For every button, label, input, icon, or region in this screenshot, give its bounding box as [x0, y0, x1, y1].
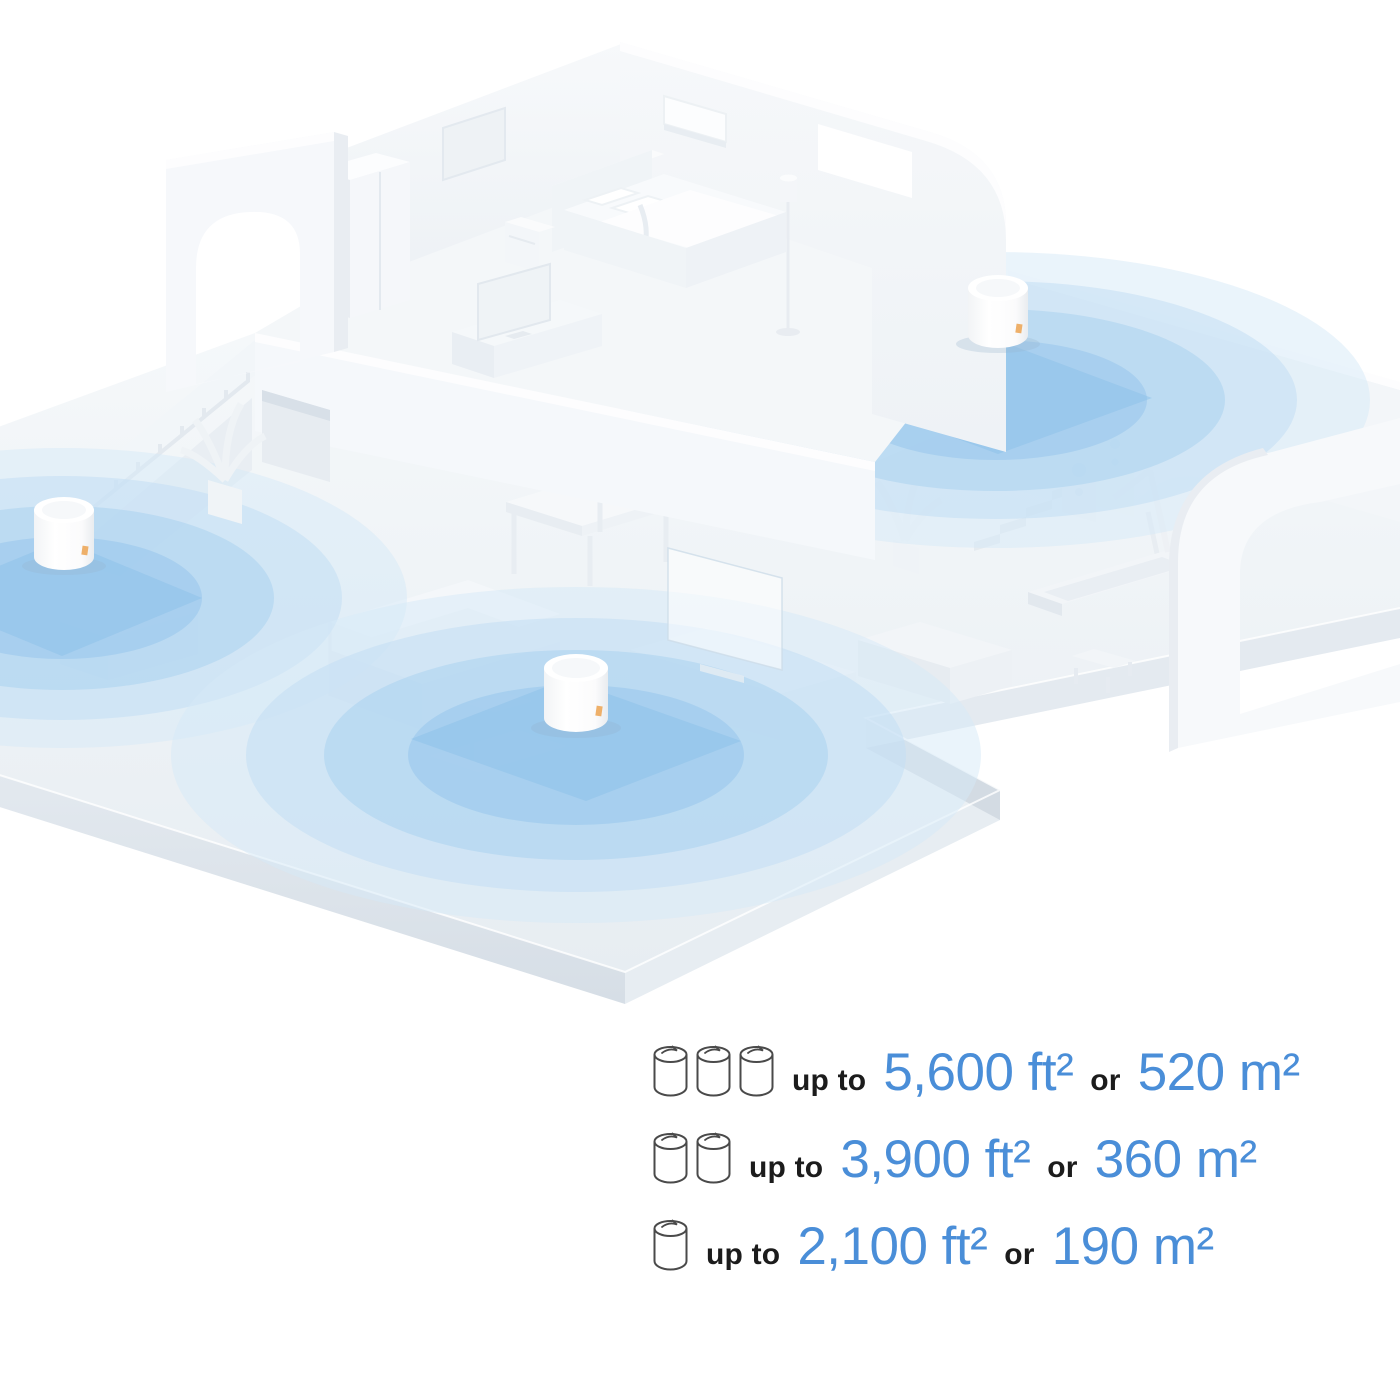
- up-to-label: up to: [706, 1238, 780, 1272]
- mesh-router-cylinder-icon: [652, 1218, 689, 1275]
- coverage-row-1-unit: up to 2,100 ft² or 190 m²: [652, 1216, 1300, 1276]
- area-metric-value: 360 m²: [1095, 1129, 1257, 1190]
- area-imperial-value: 2,100 ft²: [797, 1216, 987, 1277]
- brand-mark: [81, 546, 88, 556]
- coverage-row-2-units: up to 3,900 ft² or 360 m²: [652, 1129, 1300, 1189]
- or-label: or: [1047, 1151, 1077, 1185]
- unit-icons: [652, 1044, 775, 1101]
- brand-mark: [1015, 324, 1022, 334]
- coverage-zone-center: [171, 587, 981, 923]
- coverage-legend: up to 5,600 ft² or 520 m²: [652, 1042, 1300, 1276]
- mesh-router-cylinder-icon: [652, 1131, 689, 1188]
- up-to-label: up to: [792, 1064, 866, 1098]
- mesh-router-cylinder-icon: [695, 1044, 732, 1101]
- up-to-label: up to: [749, 1151, 823, 1185]
- coverage-row-3-units: up to 5,600 ft² or 520 m²: [652, 1042, 1300, 1102]
- mesh-router-cylinder-icon: [652, 1044, 689, 1101]
- mesh-router-cylinder-icon: [695, 1131, 732, 1188]
- area-imperial-value: 5,600 ft²: [883, 1042, 1073, 1103]
- unit-icons: [652, 1218, 689, 1275]
- area-imperial-value: 3,900 ft²: [840, 1129, 1030, 1190]
- area-metric-value: 190 m²: [1052, 1216, 1214, 1277]
- mesh-router-cylinder-icon: [738, 1044, 775, 1101]
- area-metric-value: 520 m²: [1138, 1042, 1300, 1103]
- infographic-canvas: up to 5,600 ft² or 520 m²: [0, 0, 1400, 1400]
- router-unit-center: [531, 654, 621, 738]
- unit-icons: [652, 1131, 732, 1188]
- router-unit-left: [22, 497, 106, 575]
- router-unit-top-right: [956, 275, 1040, 353]
- or-label: or: [1004, 1238, 1034, 1272]
- house-illustration: [0, 0, 1400, 1010]
- or-label: or: [1090, 1064, 1120, 1098]
